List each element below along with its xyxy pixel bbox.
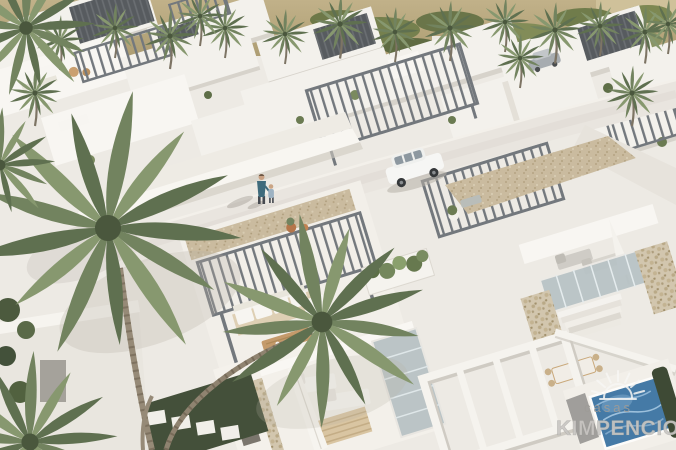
child-top — [268, 189, 274, 198]
scene-render: casas KIMPENCIO — [0, 0, 676, 450]
head — [269, 184, 274, 189]
teal-jacket — [257, 181, 266, 197]
render-stage: casas KIMPENCIO — [0, 0, 676, 450]
watermark-line1: casas — [584, 400, 633, 415]
paver — [147, 410, 167, 426]
watermark-line2: KIMPENCIO — [556, 417, 676, 440]
paver — [196, 420, 216, 436]
paver — [220, 425, 240, 441]
